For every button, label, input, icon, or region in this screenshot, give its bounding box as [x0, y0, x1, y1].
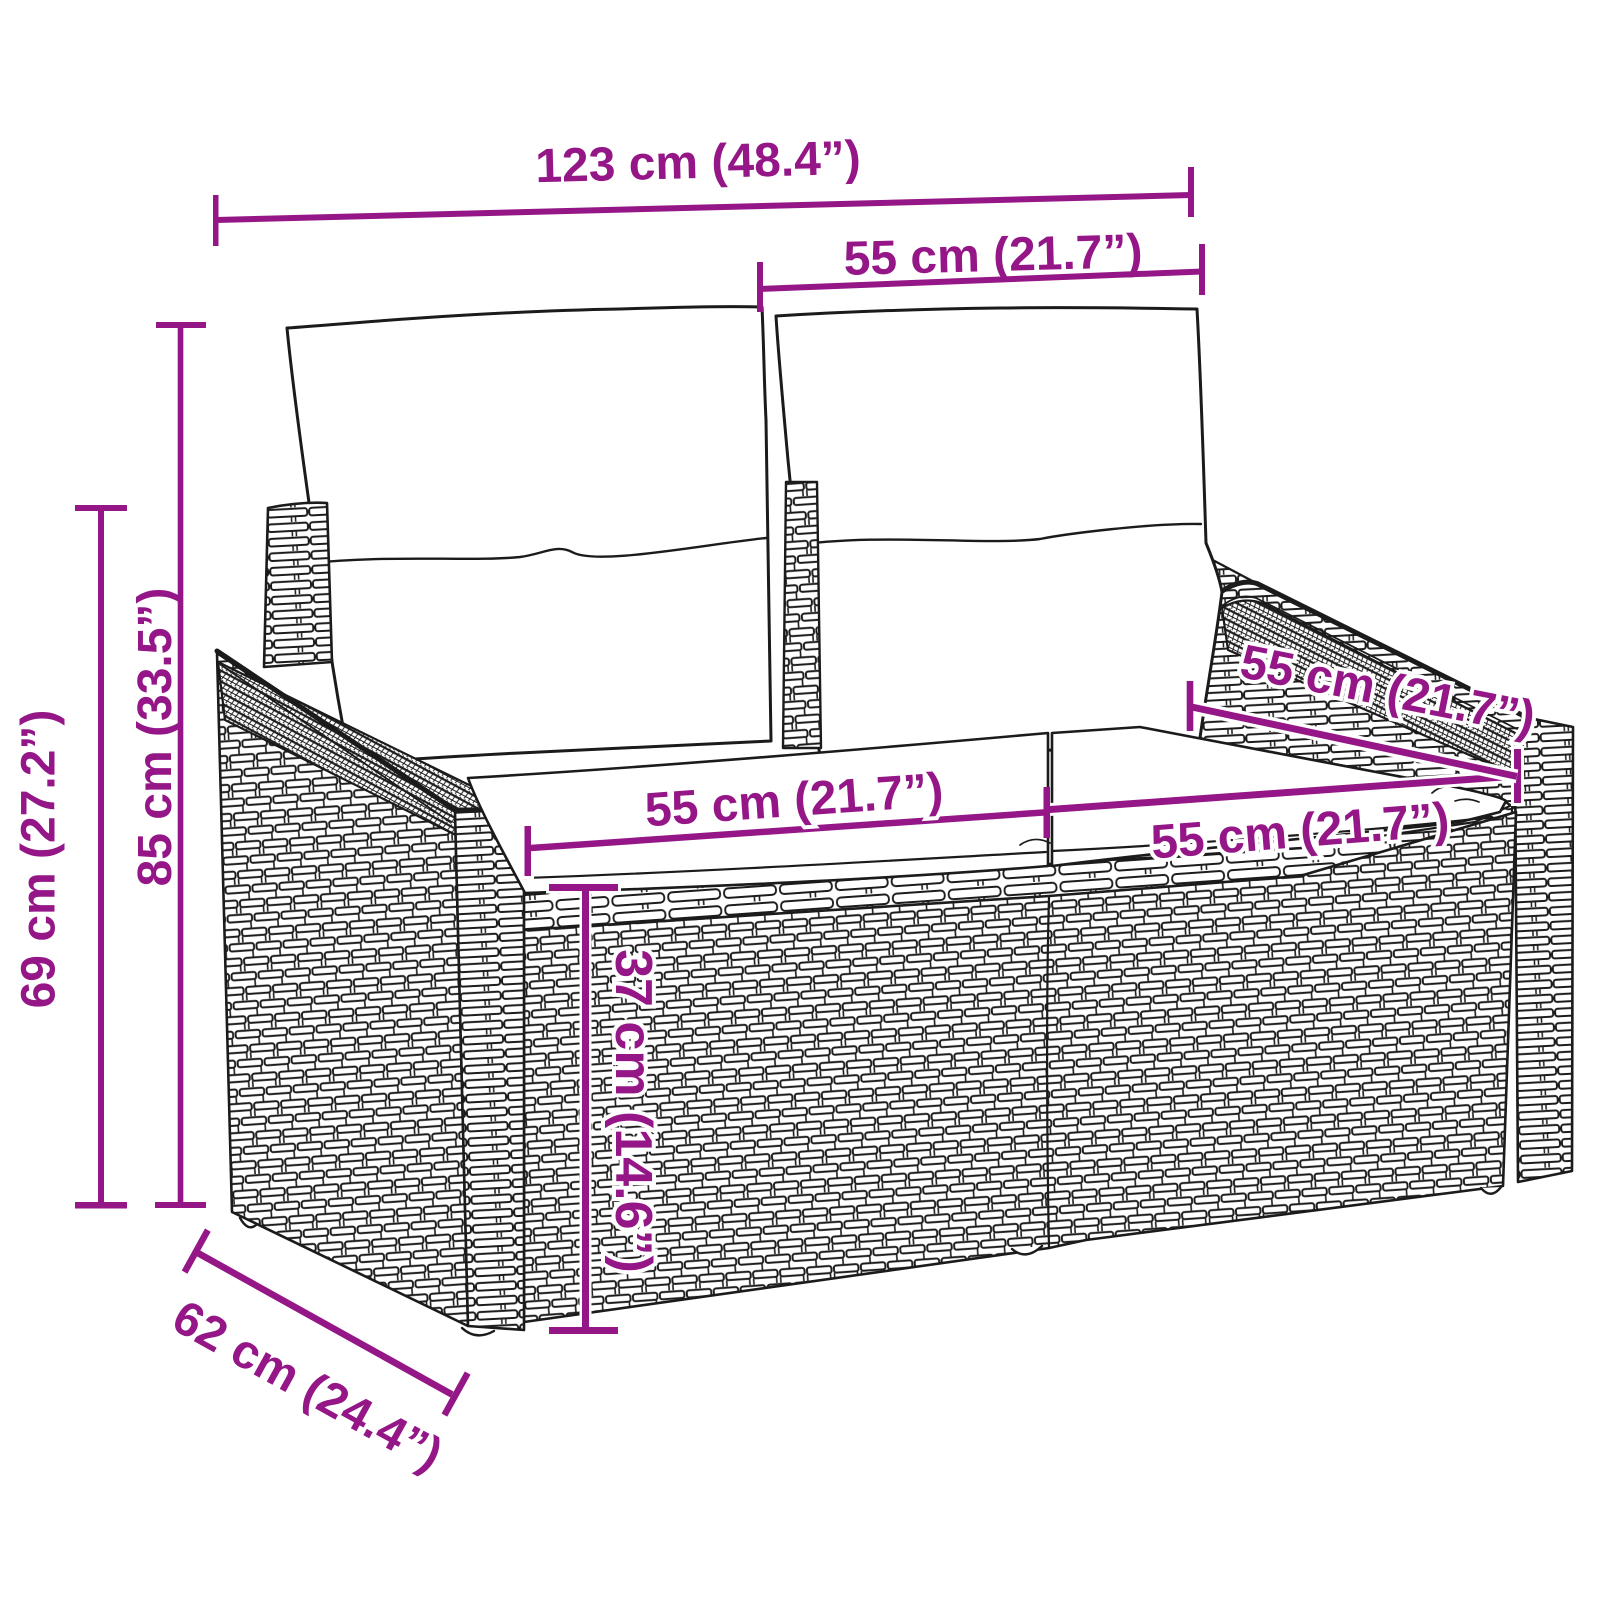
svg-text:123 cm (48.4”): 123 cm (48.4”) — [535, 132, 862, 194]
svg-text:62 cm (24.4”): 62 cm (24.4”) — [164, 1291, 451, 1482]
svg-text:55 cm (21.7”): 55 cm (21.7”) — [843, 225, 1143, 286]
svg-text:69 cm (27.2”): 69 cm (27.2”) — [13, 710, 66, 1009]
svg-text:85 cm (33.5”): 85 cm (33.5”) — [129, 588, 182, 887]
svg-text:37 cm (14.6”): 37 cm (14.6”) — [604, 949, 662, 1273]
